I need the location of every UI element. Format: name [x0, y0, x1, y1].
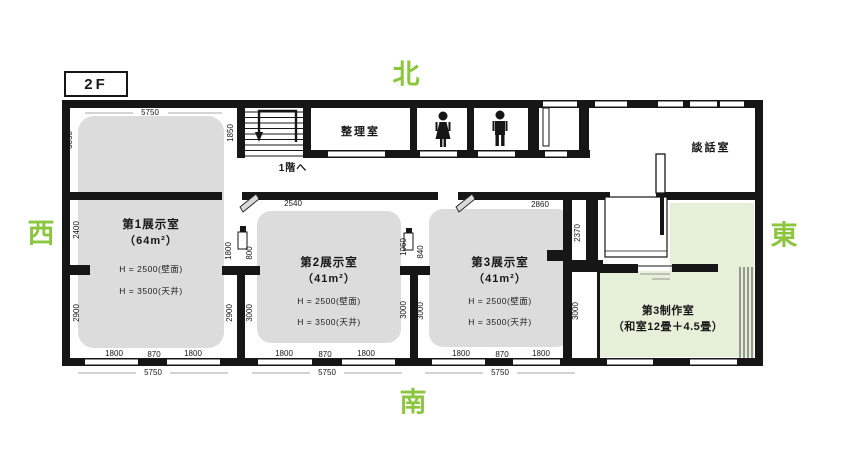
compass-west: 西 [28, 221, 55, 248]
divider-wall-2-3 [400, 228, 430, 358]
room-detail: （和室12畳＋4.5畳） [593, 318, 743, 334]
compass-east: 東 [771, 223, 798, 250]
room-name: 第2展示室 [257, 254, 401, 270]
closet [605, 197, 667, 257]
stairs-to-1f-label: 1階へ [263, 159, 323, 174]
room-area: （41m²） [429, 270, 571, 286]
studio-room-label: 第3制作室 （和室12畳＋4.5畳） [593, 302, 743, 334]
room-area: （64m²） [78, 232, 224, 248]
stairs-icon [237, 102, 311, 158]
room-wall-height: H = 2500(壁面) [257, 295, 401, 307]
room-name: 第3展示室 [429, 254, 571, 270]
exhibit-room-3-label: 第3展示室 （41m²） H = 2500(壁面) H = 3500(天井) [429, 254, 571, 328]
stairs-direction-arrow [255, 111, 296, 142]
floor-label: 2F [64, 71, 128, 97]
sorting-room-label: 整理室 [311, 123, 410, 139]
room-area: （41m²） [257, 270, 401, 286]
man-icon [493, 111, 508, 147]
room-name: 第3制作室 [593, 302, 743, 318]
floor-plan-2f: 2F 北 南 西 東 第1展示室 （64m²） H = 2500(壁面) H =… [0, 0, 842, 474]
room-ceiling-height: H = 3500(天井) [429, 316, 571, 328]
room-wall-height: H = 2500(壁面) [78, 263, 224, 275]
exhibit-room-1-label: 第1展示室 （64m²） H = 2500(壁面) H = 3500(天井) [78, 216, 224, 297]
room-wall-height: H = 2500(壁面) [429, 295, 571, 307]
compass-north: 北 [393, 62, 420, 89]
compass-south: 南 [400, 390, 427, 417]
room-name: 第1展示室 [78, 216, 224, 232]
room-ceiling-height: H = 3500(天井) [257, 316, 401, 328]
exhibit-room-2-label: 第2展示室 （41m²） H = 2500(壁面) H = 3500(天井) [257, 254, 401, 328]
woman-icon [436, 112, 451, 148]
open-door-icon [656, 154, 665, 193]
divider-wall-1-2 [222, 226, 260, 358]
lounge-label: 談話室 [661, 139, 761, 155]
floor-label-text: 2F [84, 76, 108, 93]
room-ceiling-height: H = 3500(天井) [78, 285, 224, 297]
